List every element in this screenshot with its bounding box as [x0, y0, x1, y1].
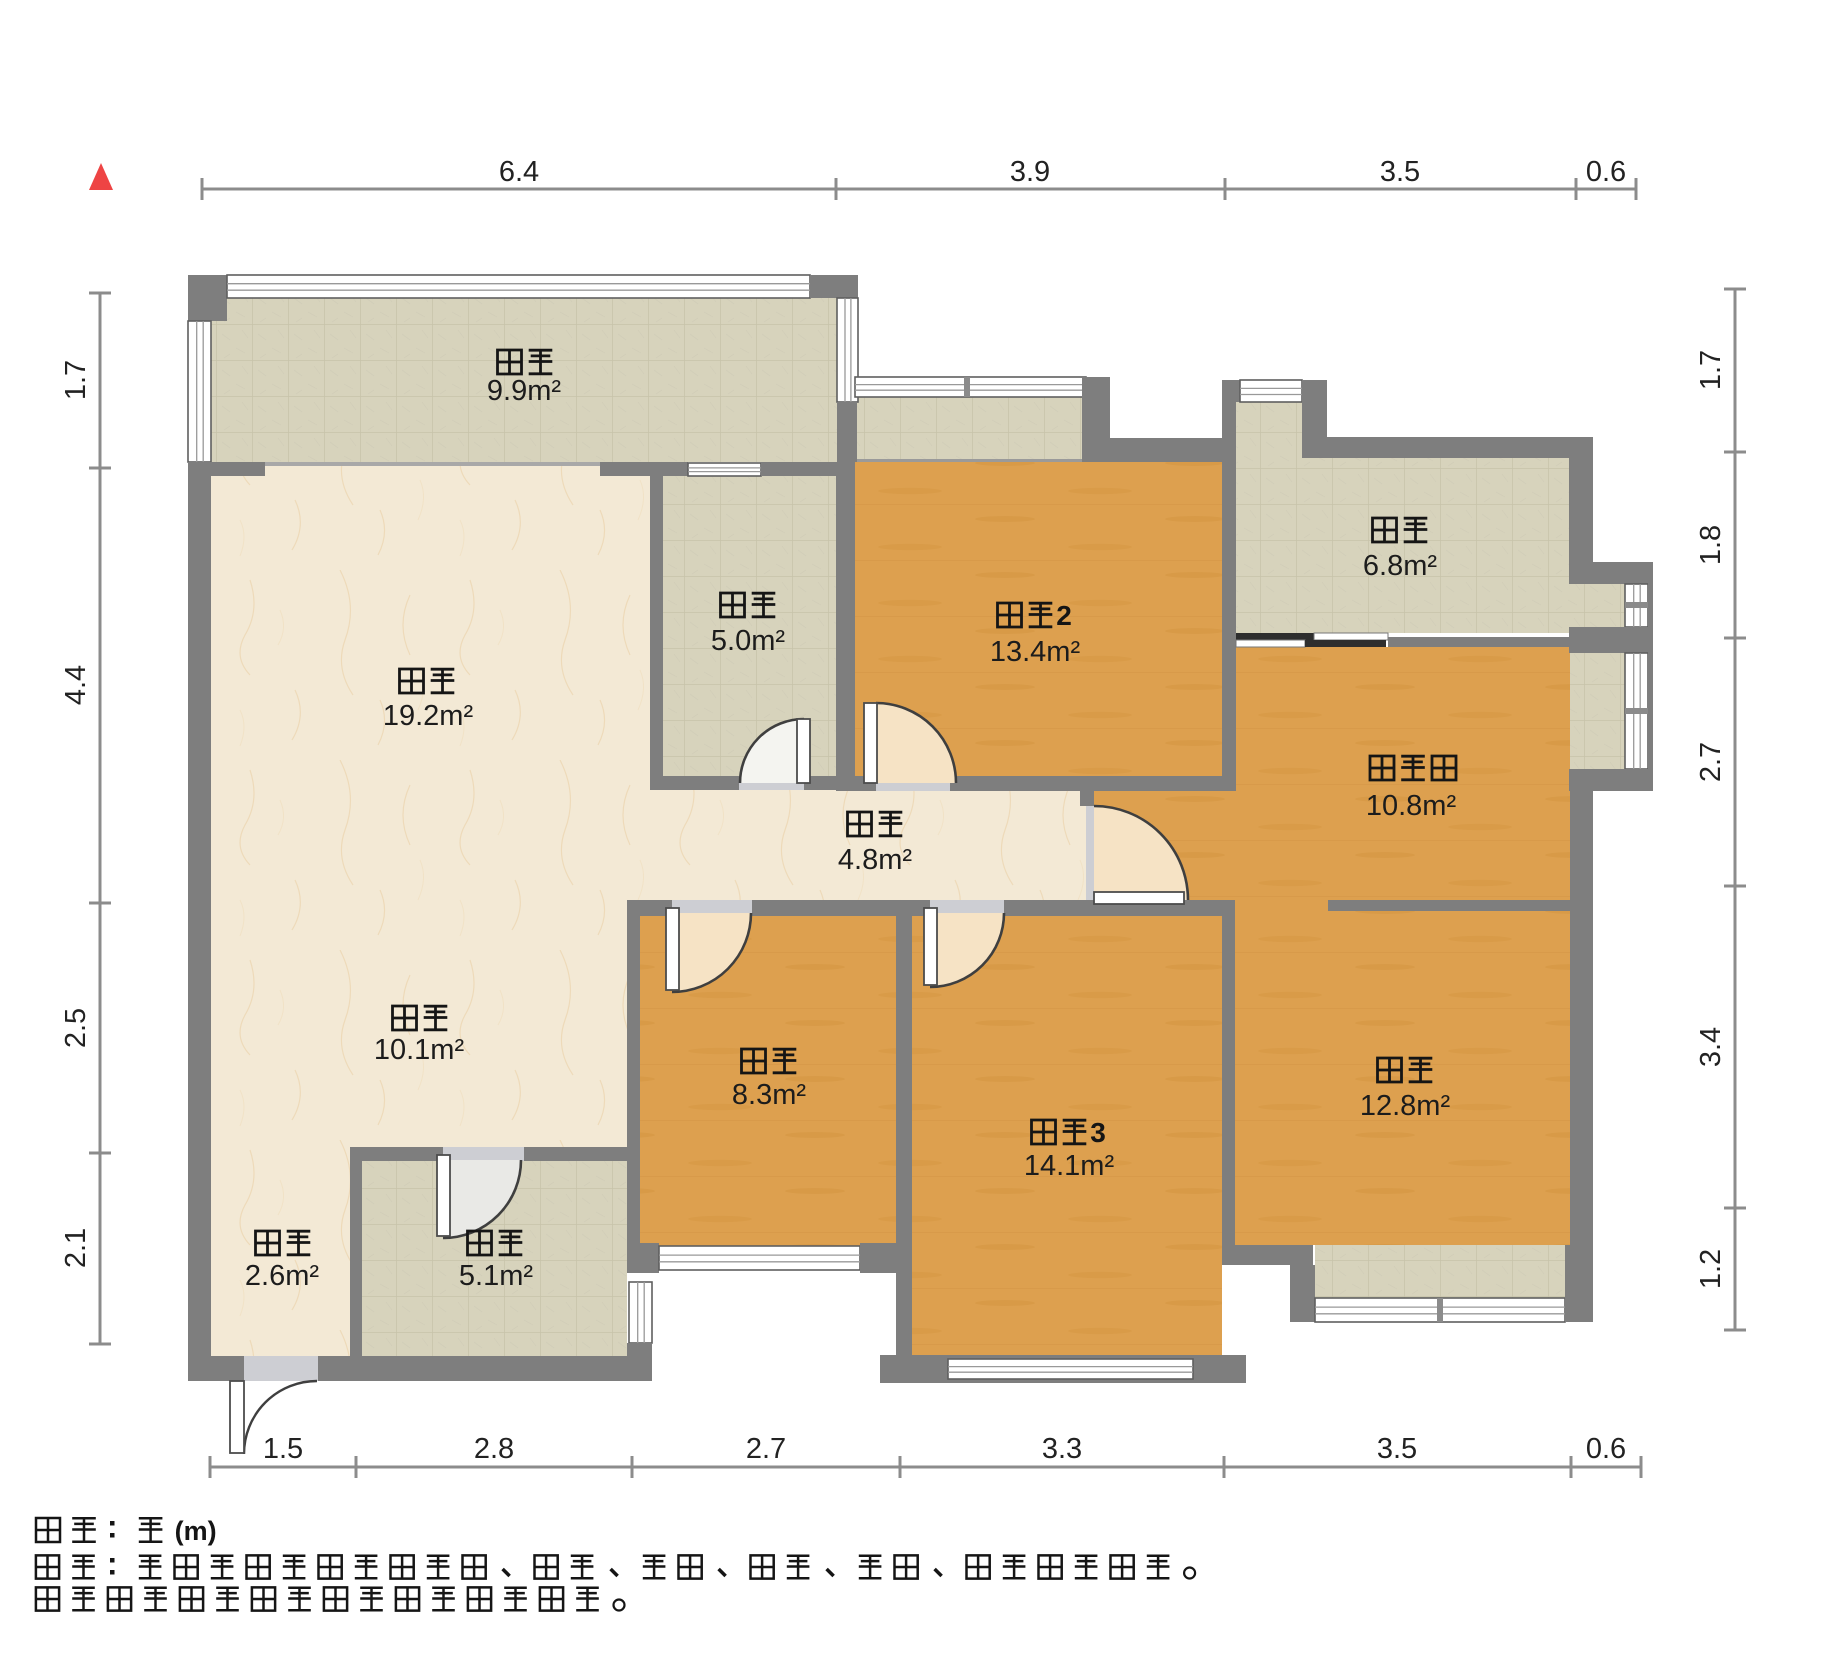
svg-text:5.0m²: 5.0m² — [711, 625, 785, 657]
svg-text:1.5: 1.5 — [263, 1433, 303, 1465]
svg-text:0.6: 0.6 — [1586, 156, 1626, 188]
svg-text:5.1m²: 5.1m² — [459, 1260, 533, 1292]
svg-text:1.2: 1.2 — [1695, 1249, 1727, 1289]
svg-text:10.8m²: 10.8m² — [1366, 790, 1457, 822]
svg-text:10.1m²: 10.1m² — [374, 1034, 465, 1066]
svg-text:6.8m²: 6.8m² — [1363, 550, 1437, 582]
svg-text:1.8: 1.8 — [1695, 525, 1727, 565]
svg-text:2.7: 2.7 — [1695, 742, 1727, 782]
svg-text:3.9: 3.9 — [1010, 156, 1050, 188]
svg-text:3.4: 3.4 — [1695, 1027, 1727, 1067]
svg-text:14.1m²: 14.1m² — [1024, 1150, 1115, 1182]
svg-text:(m): (m) — [175, 1516, 217, 1546]
svg-text:2.5: 2.5 — [60, 1008, 92, 1048]
svg-text:19.2m²: 19.2m² — [383, 700, 474, 732]
svg-text:3.3: 3.3 — [1042, 1433, 1082, 1465]
svg-text:2: 2 — [1056, 600, 1072, 631]
svg-text:1.7: 1.7 — [60, 360, 92, 400]
svg-text:12.8m²: 12.8m² — [1360, 1090, 1451, 1122]
svg-text:3: 3 — [1090, 1117, 1106, 1148]
svg-text:9.9m²: 9.9m² — [487, 375, 561, 407]
svg-text:2.6m²: 2.6m² — [245, 1260, 319, 1292]
svg-text:2.8: 2.8 — [474, 1433, 514, 1465]
svg-text:0.6: 0.6 — [1586, 1433, 1626, 1465]
svg-text:2.1: 2.1 — [60, 1228, 92, 1268]
svg-text:8.3m²: 8.3m² — [732, 1079, 806, 1111]
svg-text:3.5: 3.5 — [1380, 156, 1420, 188]
svg-text:4.8m²: 4.8m² — [838, 844, 912, 876]
svg-text:1.7: 1.7 — [1695, 350, 1727, 390]
svg-text:6.4: 6.4 — [499, 156, 539, 188]
svg-text:13.4m²: 13.4m² — [990, 636, 1081, 668]
svg-text:2.7: 2.7 — [746, 1433, 786, 1465]
svg-text:3.5: 3.5 — [1377, 1433, 1417, 1465]
svg-text:4.4: 4.4 — [60, 665, 92, 705]
